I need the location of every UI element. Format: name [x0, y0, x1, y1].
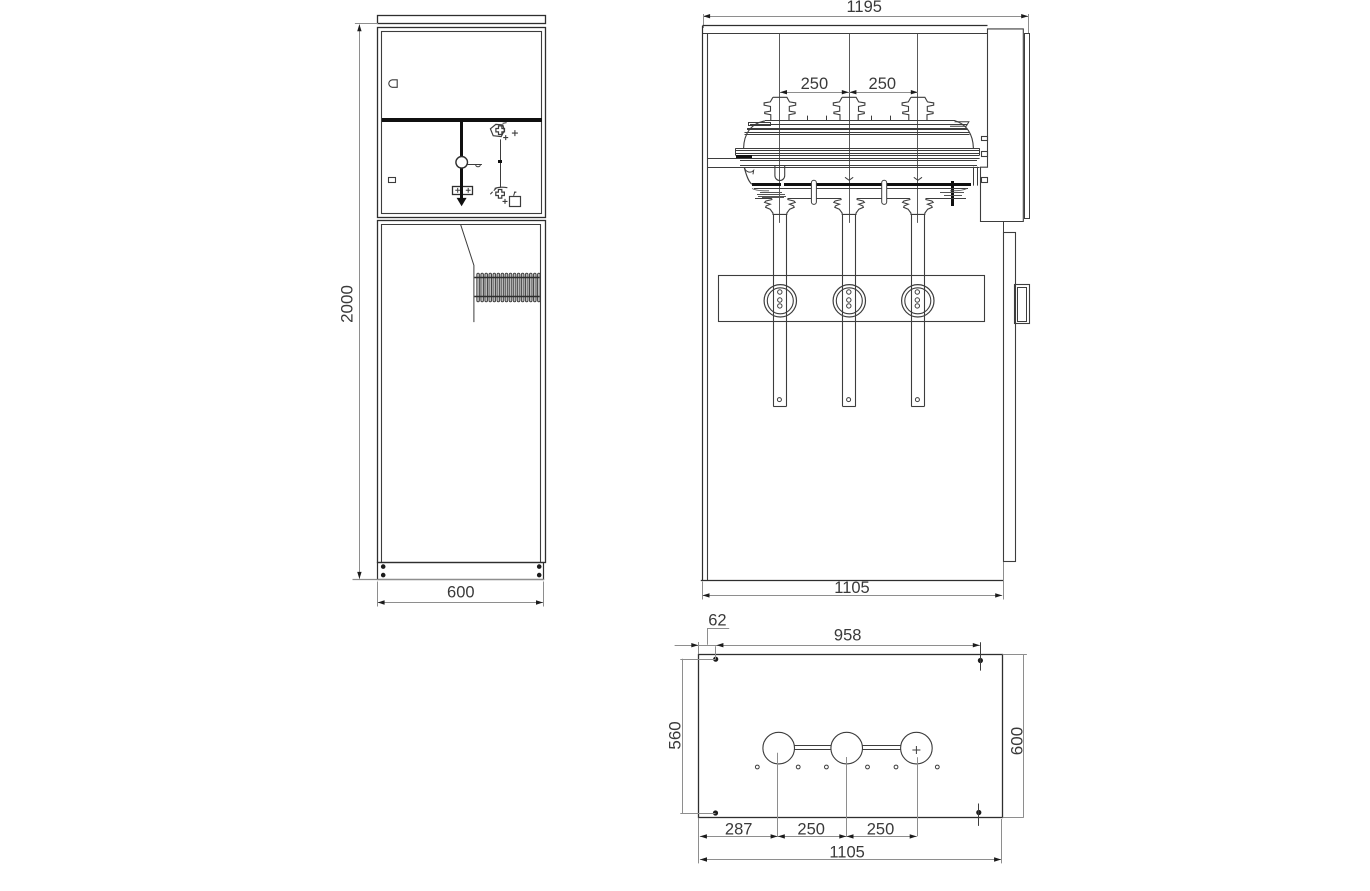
svg-text:250: 250 — [797, 821, 825, 839]
svg-text:2000: 2000 — [337, 285, 356, 323]
svg-text:600: 600 — [447, 583, 475, 601]
svg-text:1195: 1195 — [846, 0, 881, 16]
svg-text:560: 560 — [665, 721, 684, 749]
svg-text:287: 287 — [725, 821, 753, 839]
svg-text:250: 250 — [801, 75, 829, 93]
svg-text:958: 958 — [834, 626, 862, 644]
svg-text:62: 62 — [708, 611, 726, 629]
svg-text:250: 250 — [869, 75, 897, 93]
svg-text:250: 250 — [867, 821, 895, 839]
svg-text:1105: 1105 — [829, 844, 864, 862]
svg-text:600: 600 — [1007, 727, 1026, 755]
svg-text:1105: 1105 — [834, 579, 869, 597]
